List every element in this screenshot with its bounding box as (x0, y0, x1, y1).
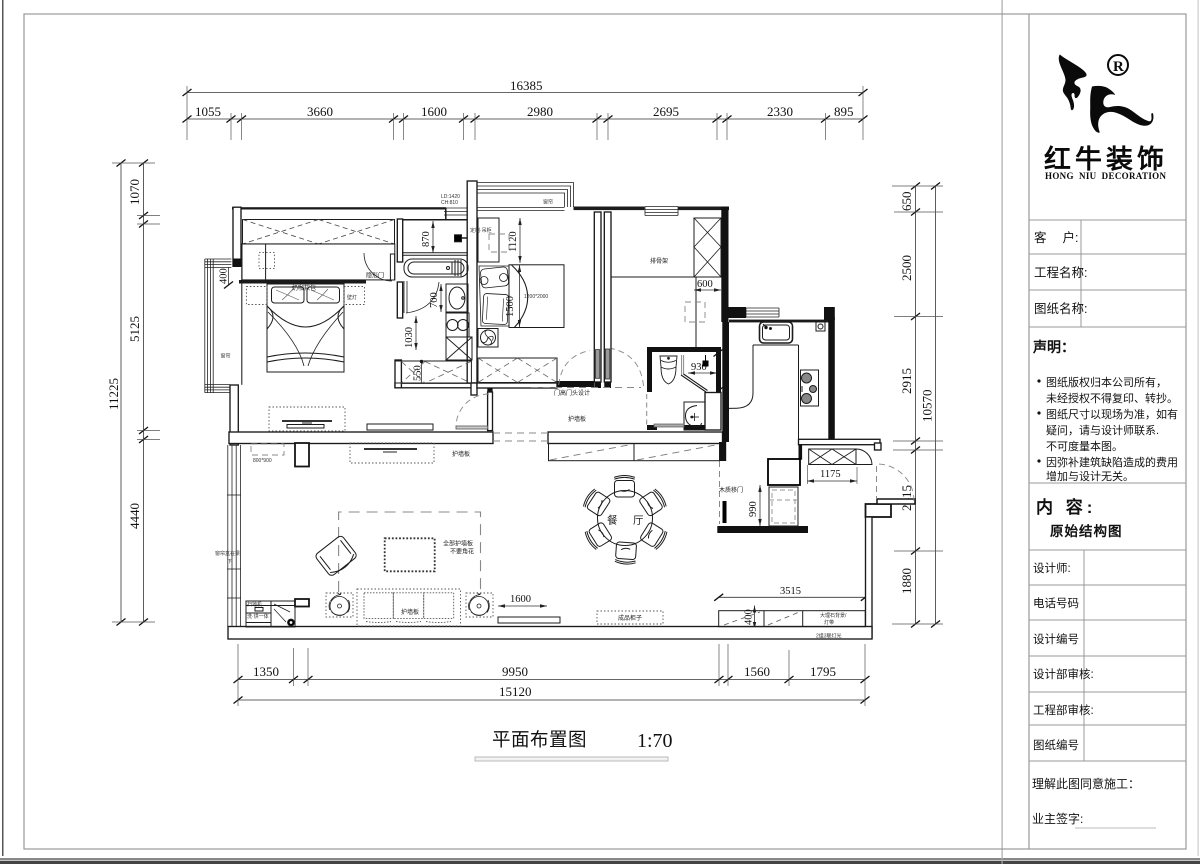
svg-text:定制·吊柜: 定制·吊柜 (470, 227, 492, 234)
svg-text:图纸编号: 图纸编号 (1033, 738, 1079, 752)
svg-text:1600: 1600 (510, 594, 531, 605)
svg-text:700: 700 (429, 292, 440, 308)
svg-text:895: 895 (834, 104, 854, 119)
svg-text:9950: 9950 (502, 664, 528, 679)
svg-text:图纸名称:: 图纸名称: (1034, 301, 1087, 316)
svg-text:1055: 1055 (195, 104, 221, 119)
svg-text:图纸尺寸以现场为准，如有: 图纸尺寸以现场为准，如有 (1046, 407, 1178, 421)
svg-text:1600: 1600 (421, 104, 447, 119)
svg-text:隐形门: 隐形门 (366, 272, 384, 280)
svg-text:HONG NIU DECORATION: HONG NIU DECORATION (1045, 171, 1167, 181)
svg-text:图纸版权归本公司所有，: 图纸版权归本公司所有， (1046, 375, 1167, 389)
svg-text:内 容:: 内 容: (1036, 497, 1096, 517)
svg-text:壁灯: 壁灯 (347, 294, 357, 301)
svg-text:11225: 11225 (106, 378, 121, 410)
svg-text:CH:810: CH:810 (441, 200, 458, 206)
svg-text:洗·烘一体: 洗·烘一体 (247, 613, 269, 620)
svg-text:设计师:: 设计师: (1033, 562, 1071, 575)
svg-text:650: 650 (899, 192, 914, 212)
svg-text:护墙板: 护墙板 (401, 608, 419, 616)
svg-text:理解此图同意施工：: 理解此图同意施工： (1032, 776, 1140, 791)
svg-text:1795: 1795 (810, 664, 836, 679)
svg-text:16385: 16385 (510, 78, 543, 93)
svg-text:2915: 2915 (899, 368, 914, 394)
svg-text:大理石背景/: 大理石背景/ (820, 612, 847, 619)
svg-text:1500: 1500 (505, 296, 516, 317)
svg-text:电话号码: 电话号码 (1033, 597, 1079, 610)
svg-text:1120: 1120 (508, 231, 519, 252)
svg-text:护墙板: 护墙板 (568, 415, 586, 423)
svg-text:1200*2000: 1200*2000 (524, 294, 548, 300)
svg-text:成品柜子: 成品柜子 (618, 614, 642, 622)
svg-text:2330: 2330 (767, 104, 793, 119)
svg-text:业主签字:: 业主签字: (1032, 811, 1083, 826)
svg-text:800*900: 800*900 (253, 458, 272, 464)
svg-text:护墙板: 护墙板 (452, 450, 470, 458)
svg-text:2500: 2500 (899, 255, 914, 281)
svg-text:原始结构图: 原始结构图 (1050, 523, 1123, 539)
svg-text:不要角花: 不要角花 (450, 548, 474, 556)
svg-text:15120: 15120 (499, 684, 532, 699)
svg-text:1030: 1030 (404, 327, 415, 348)
svg-text:设计编号: 设计编号 (1033, 632, 1079, 646)
svg-text:因弥补建筑缺陷造成的费用: 因弥补建筑缺陷造成的费用 (1046, 455, 1178, 469)
svg-text:1560: 1560 (744, 664, 770, 679)
svg-text:扫地机: 扫地机 (247, 601, 262, 608)
svg-text:1350: 1350 (253, 664, 279, 679)
svg-text:550: 550 (413, 365, 424, 381)
svg-text:灯带: 灯带 (824, 619, 834, 626)
svg-text:3515: 3515 (780, 586, 801, 597)
svg-text:600: 600 (697, 279, 713, 290)
svg-text:870: 870 (421, 231, 432, 247)
svg-text:1175: 1175 (820, 469, 841, 480)
svg-text:疑问，请与设计师联系.: 疑问，请与设计师联系. (1046, 424, 1159, 437)
svg-text:工程名称:: 工程名称: (1034, 265, 1087, 280)
svg-text:990: 990 (748, 501, 759, 517)
svg-text:奶咖软包: 奶咖软包 (292, 284, 316, 292)
svg-text:5125: 5125 (127, 316, 142, 342)
svg-text:平面布置图: 平面布置图 (492, 730, 587, 751)
svg-text:木质移门: 木质移门 (719, 486, 743, 494)
svg-text:门高门头设计: 门高门头设计 (554, 389, 590, 397)
svg-text:窗帘: 窗帘 (543, 199, 553, 206)
svg-text:4440: 4440 (127, 503, 142, 529)
svg-text:窗帘: 窗帘 (221, 353, 231, 360)
svg-text:全部护墙板: 全部护墙板 (443, 540, 473, 548)
svg-text:客 户:: 客 户: (1034, 230, 1078, 245)
svg-text:声明：: 声明： (1032, 339, 1075, 355)
svg-text:R: R (1113, 59, 1124, 75)
svg-text:餐厅: 餐厅 (607, 514, 659, 527)
svg-text:2980: 2980 (527, 104, 553, 119)
svg-text:10570: 10570 (920, 390, 935, 423)
svg-text:1880: 1880 (899, 568, 914, 594)
svg-text:1070: 1070 (127, 179, 142, 205)
svg-text:未经授权不得复印、转抄。: 未经授权不得复印、转抄。 (1046, 391, 1178, 405)
svg-text:红牛装饰: 红牛装饰 (1044, 144, 1168, 174)
svg-text:2695: 2695 (653, 104, 679, 119)
svg-text:排骨架: 排骨架 (650, 257, 668, 265)
svg-text:1:70: 1:70 (637, 730, 673, 752)
svg-text:工程部审核:: 工程部审核: (1033, 703, 1094, 717)
svg-text:增加与设计无关。: 增加与设计无关。 (1046, 469, 1134, 483)
svg-text:下: 下 (227, 559, 232, 565)
svg-text:设计部审核:: 设计部审核: (1033, 667, 1094, 681)
svg-text:3660: 3660 (307, 104, 333, 119)
svg-text:窗帘盒在梁: 窗帘盒在梁 (215, 550, 240, 557)
svg-text:400: 400 (219, 268, 230, 284)
svg-text:不可度量本图。: 不可度量本图。 (1046, 439, 1123, 453)
svg-text:2组3联灯光: 2组3联灯光 (816, 633, 842, 640)
